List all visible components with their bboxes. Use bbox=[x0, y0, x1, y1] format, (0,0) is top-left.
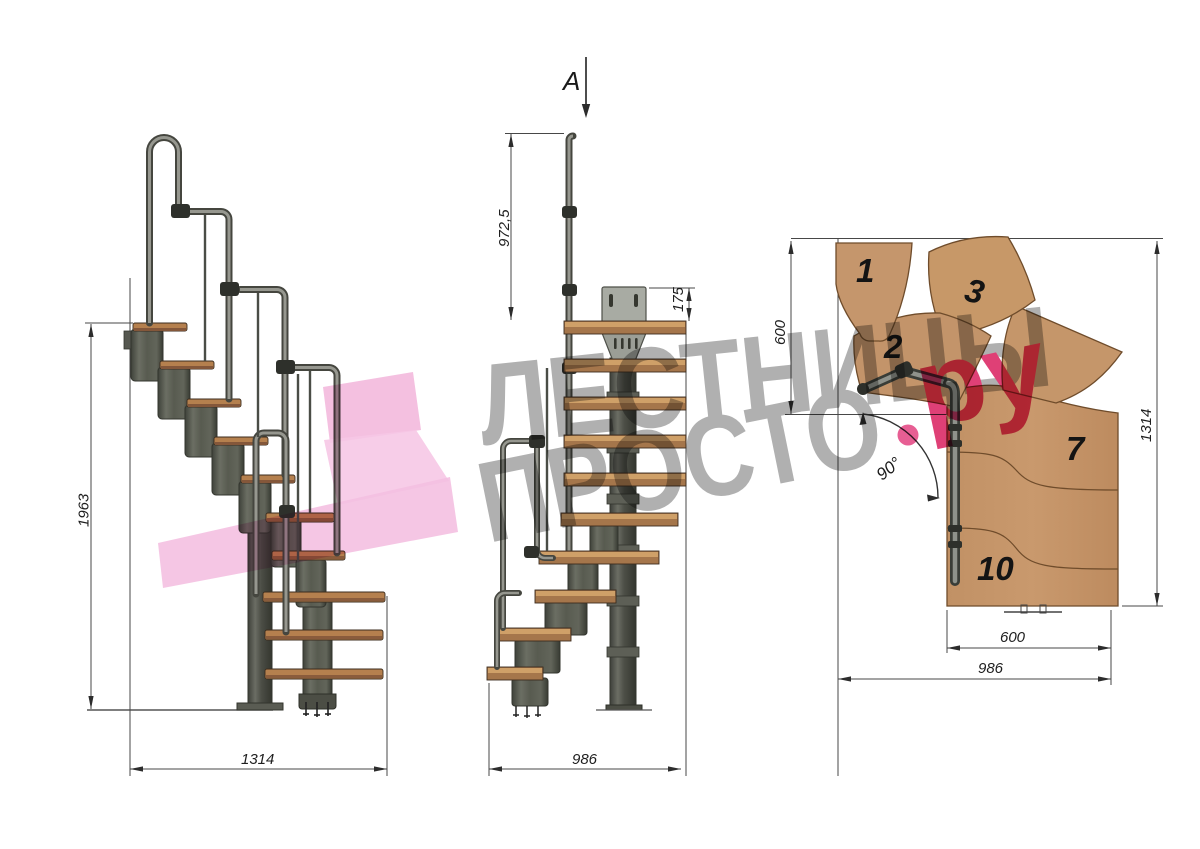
svg-text:ру: ру bbox=[904, 302, 1058, 452]
svg-text:7: 7 bbox=[1066, 430, 1086, 467]
svg-text:1: 1 bbox=[856, 252, 874, 289]
svg-text:1314: 1314 bbox=[241, 751, 274, 768]
svg-text:175: 175 bbox=[670, 286, 687, 312]
svg-text:972,5: 972,5 bbox=[496, 209, 513, 247]
svg-text:10: 10 bbox=[977, 550, 1014, 587]
svg-text:986: 986 bbox=[978, 660, 1004, 677]
svg-text:1314: 1314 bbox=[1138, 409, 1155, 442]
svg-text:600: 600 bbox=[1000, 629, 1026, 646]
svg-text:1963: 1963 bbox=[76, 493, 93, 527]
svg-text:A: A bbox=[561, 66, 580, 96]
svg-text:986: 986 bbox=[572, 751, 598, 768]
